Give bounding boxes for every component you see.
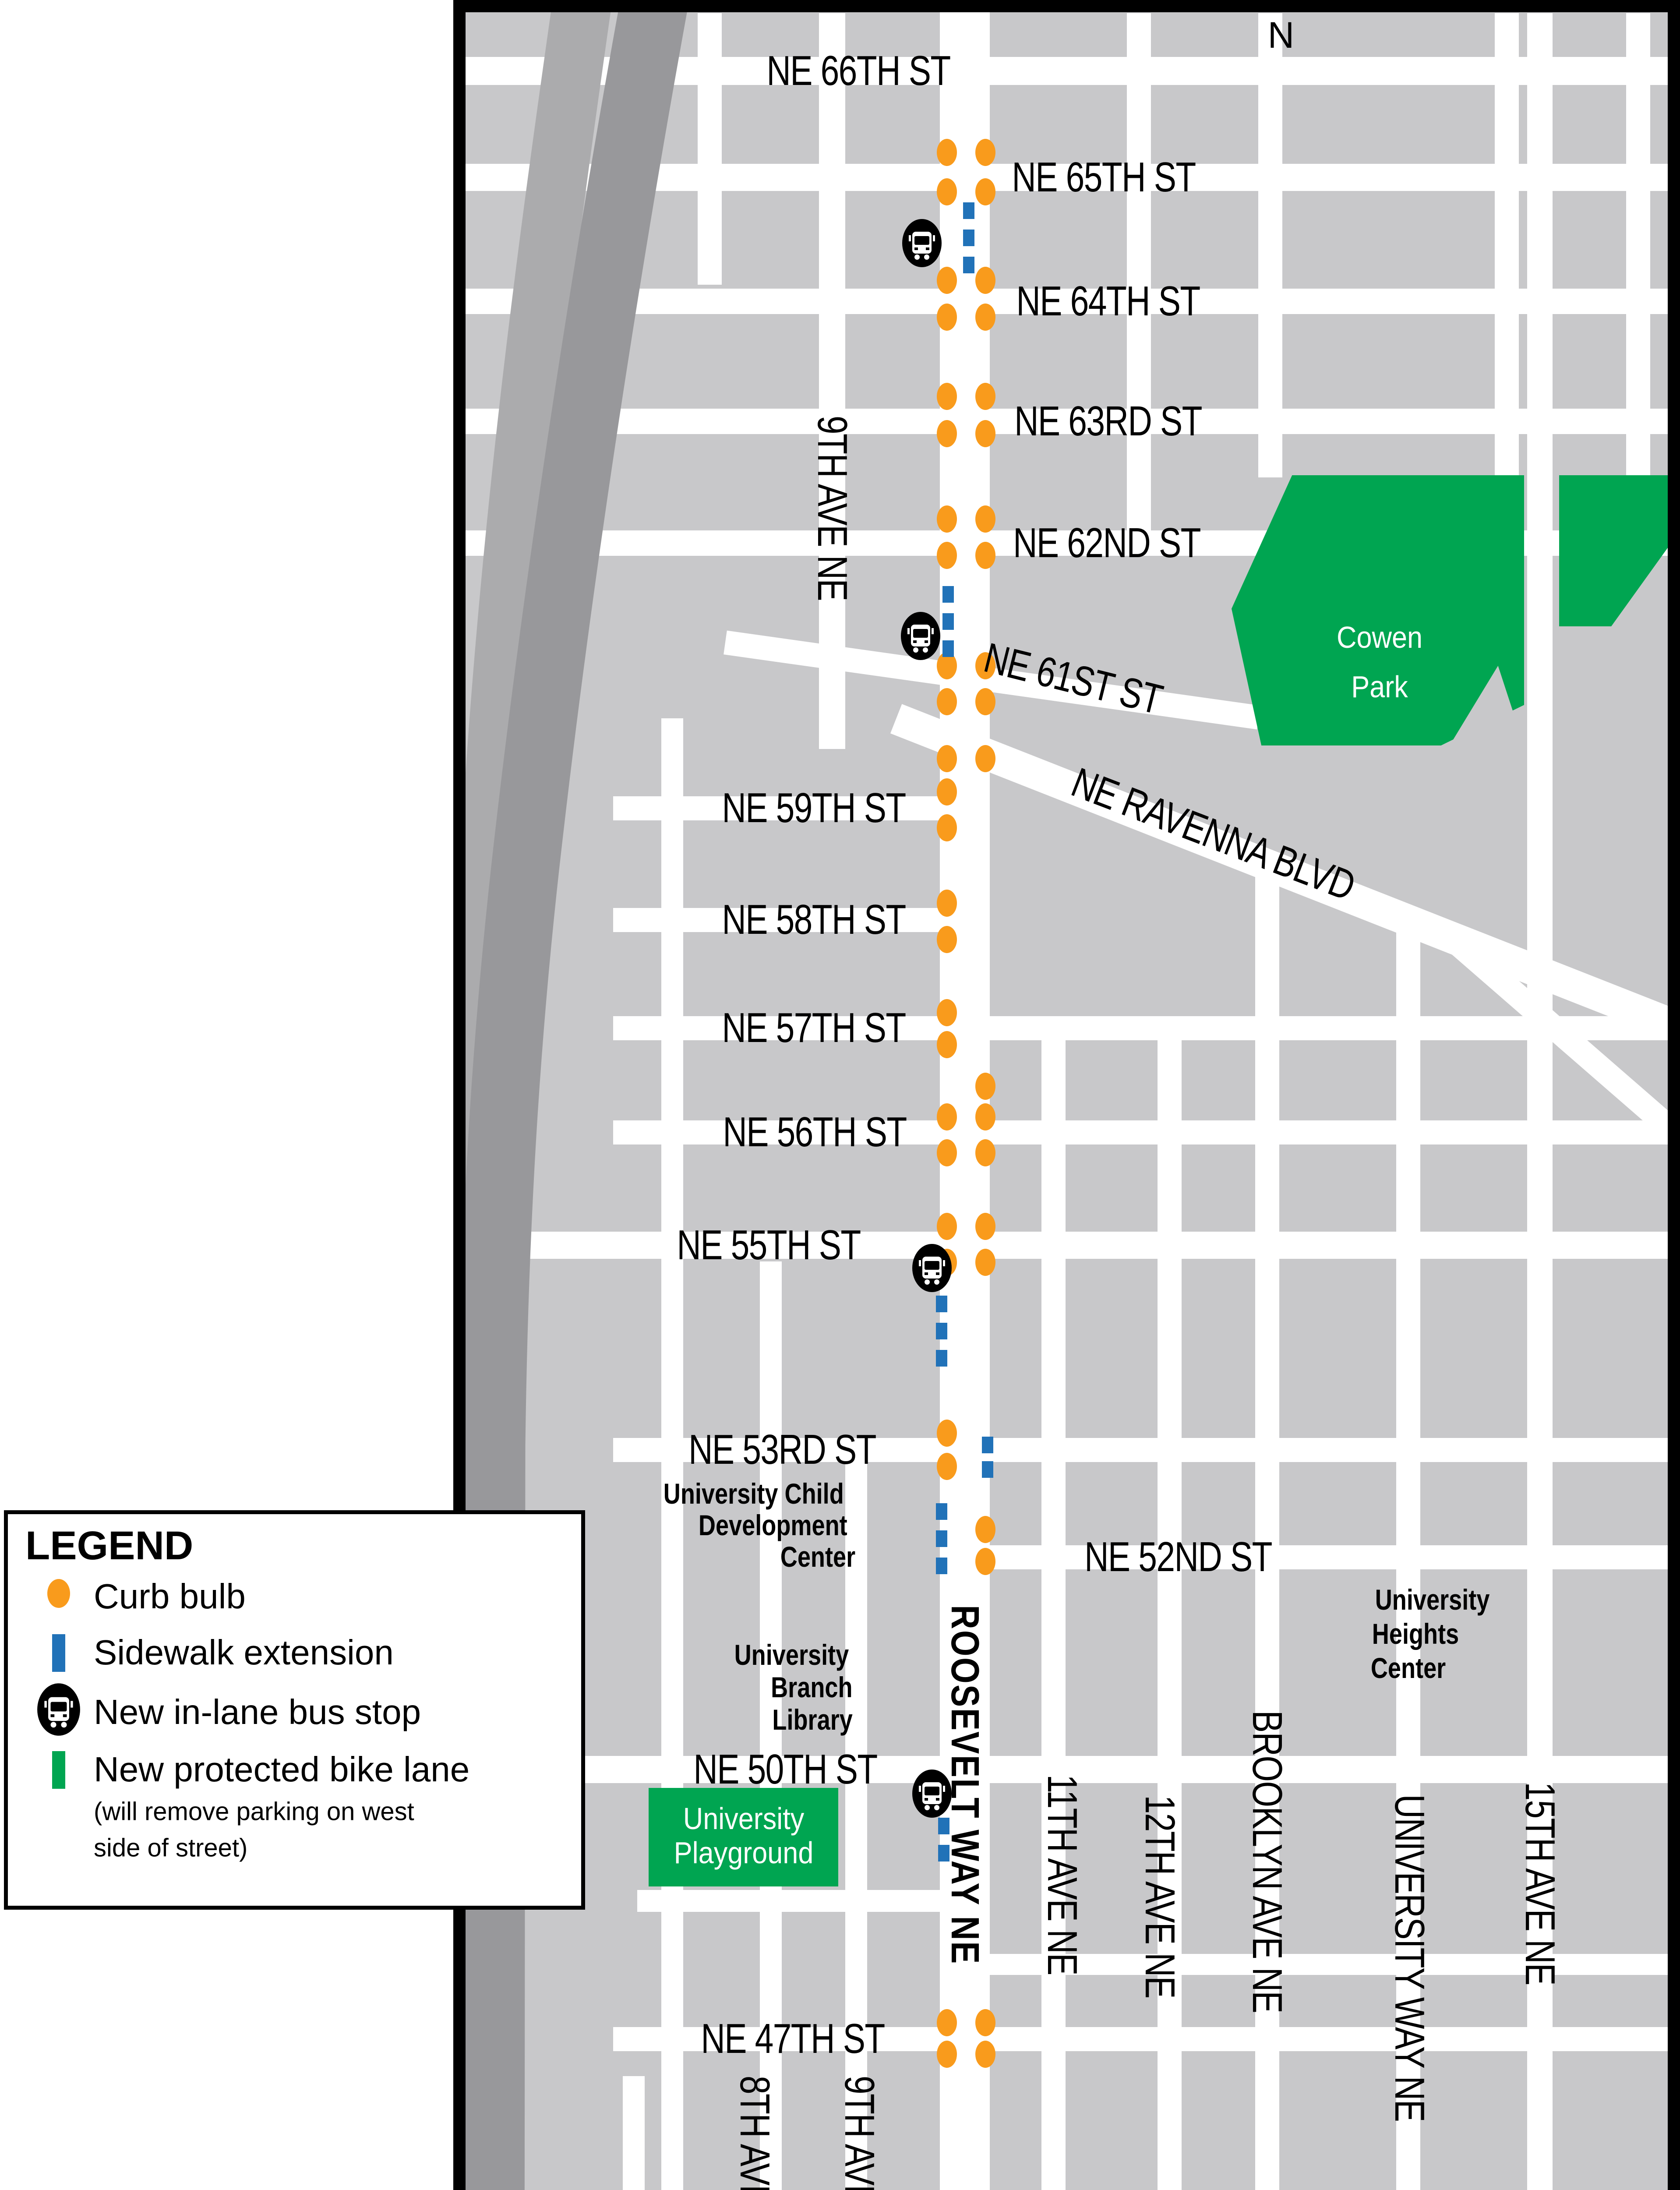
label-9th-ave-ne: 9TH AVE NE [811, 416, 853, 600]
label-ne-65th-st: NE 65TH ST [1012, 156, 1195, 198]
street-horizontal [466, 1232, 1668, 1259]
sidewalk-extension-marker [936, 1350, 947, 1367]
label-university-way-ne: UNIVERSITY WAY NE [1388, 1794, 1430, 2122]
curb-bulb-marker [937, 139, 957, 166]
compass-north-label: N [1268, 17, 1295, 53]
roosevelt-way-improvements-map: N 5 LEGEND Curb bulb Sidewalk extension … [0, 0, 1680, 2190]
sidewalk-extension-marker [942, 640, 954, 657]
curb-bulb-marker [937, 999, 957, 1026]
legend-bike-lane-note-line1: (will remove parking on west [94, 1797, 414, 1826]
label-center: Center [1371, 1653, 1446, 1682]
curb-bulb-marker [937, 1453, 957, 1480]
label-ne-47th-st: NE 47TH ST [701, 2018, 884, 2060]
curb-bulb-marker [937, 778, 957, 805]
street-vertical [1626, 13, 1650, 477]
label-15th-ave-ne: 15TH AVE NE [1519, 1782, 1561, 1985]
legend-item-curb-bulb: Curb bulb [94, 1576, 246, 1617]
sidewalk-extension-icon [52, 1634, 65, 1672]
curb-bulb-marker [937, 1420, 957, 1447]
street-vertical [1495, 13, 1519, 477]
curb-bulb-marker [937, 688, 957, 715]
curb-bulb-marker [937, 420, 957, 447]
map-border-right [1668, 0, 1680, 2190]
sidewalk-extension-marker [963, 230, 974, 246]
label-university: University [734, 1640, 849, 1669]
label-ne-58th-st: NE 58TH ST [722, 899, 905, 941]
label-heights: Heights [1372, 1619, 1459, 1648]
university-child-development-center-building [872, 1471, 932, 1587]
bus-stop-icon [37, 1683, 81, 1736]
label-9th-ave-ne: 9TH AVE NE [838, 2076, 880, 2190]
curb-bulb-marker [937, 814, 957, 841]
label-11th-ave-ne: 11TH AVE NE [1041, 1774, 1083, 1975]
curb-bulb-marker [937, 267, 957, 294]
sidewalk-extension-marker [982, 1461, 993, 1478]
sidewalk-extension-marker [942, 613, 954, 630]
curb-bulb-marker [975, 304, 995, 331]
curb-bulb-marker [937, 178, 957, 205]
label-ne-55th-st: NE 55TH ST [677, 1224, 860, 1266]
sidewalk-extension-marker [982, 1437, 993, 1453]
sidewalk-extension-marker [936, 1558, 947, 1574]
curb-bulb-marker [937, 1103, 957, 1130]
curb-bulb-marker [975, 2009, 995, 2036]
legend-panel: LEGEND Curb bulb Sidewalk extension New … [4, 1510, 585, 1910]
university-heights-center-building [1292, 1568, 1354, 1731]
curb-bulb-marker [937, 1031, 957, 1058]
street-vertical [1041, 1016, 1066, 2190]
curb-bulb-marker [975, 267, 995, 294]
label-roosevelt-way-ne: ROOSEVELT WAY NE [945, 1605, 985, 1965]
label-ne-59th-st: NE 59TH ST [722, 787, 905, 829]
bike-lane-icon [52, 1751, 65, 1789]
curb-bulb-marker [975, 1213, 995, 1240]
bus-stop-marker [902, 219, 942, 270]
legend-item-bike-lane: New protected bike lane [94, 1749, 469, 1790]
label-park: Park [1351, 671, 1408, 702]
university-branch-library-building [872, 1634, 932, 1754]
label-8th-ave-ne: 8TH AVE NE [734, 2076, 776, 2190]
curb-bulb-marker [975, 139, 995, 166]
sidewalk-extension-marker [936, 1530, 947, 1547]
legend-bike-lane-note-line2: side of street) [94, 1833, 247, 1863]
curb-bulb-marker [975, 1548, 995, 1575]
bus-stop-marker [912, 1243, 952, 1295]
label-university: University [1375, 1585, 1490, 1614]
street-vertical [623, 2076, 645, 2190]
curb-bulb-marker [937, 890, 957, 917]
label-cowen: Cowen [1337, 622, 1422, 653]
curb-bulb-marker [937, 1139, 957, 1166]
curb-bulb-marker [975, 1139, 995, 1166]
label-ne-57th-st: NE 57TH ST [722, 1007, 905, 1049]
label-ne-63rd-st: NE 63RD ST [1014, 400, 1202, 442]
label-ne-53rd-st: NE 53RD ST [688, 1429, 876, 1471]
label-development: Development [699, 1511, 847, 1540]
curb-bulb-marker [975, 383, 995, 410]
curb-bulb-marker [975, 2041, 995, 2068]
street-vertical [1158, 1016, 1182, 2190]
street-horizontal [466, 57, 1668, 85]
label-ne-52nd-st: NE 52ND ST [1084, 1536, 1272, 1578]
curb-bulb-marker [937, 926, 957, 953]
sidewalk-extension-marker [936, 1296, 947, 1312]
sidewalk-extension-marker [942, 586, 954, 603]
sidewalk-extension-marker [936, 1503, 947, 1520]
label-center: Center [780, 1542, 855, 1571]
legend-title: LEGEND [25, 1523, 193, 1569]
curb-bulb-marker [975, 1103, 995, 1130]
curb-bulb-marker [937, 2041, 957, 2068]
curb-bulb-marker [975, 1516, 995, 1543]
curb-bulb-marker [975, 745, 995, 772]
sidewalk-extension-marker [963, 202, 974, 219]
label-ne-50th-st: NE 50TH ST [693, 1748, 877, 1791]
street-vertical [819, 13, 845, 749]
legend-item-bus-stop: New in-lane bus stop [94, 1692, 421, 1732]
curb-bulb-marker [975, 1073, 995, 1100]
label-ne-56th-st: NE 56TH ST [723, 1111, 906, 1153]
label-playground: Playground [674, 1837, 814, 1868]
street-vertical [661, 718, 683, 2190]
curb-bulb-marker [975, 688, 995, 715]
label-12th-ave-ne: 12TH AVE NE [1139, 1795, 1181, 1998]
label-ne-66th-st: NE 66TH ST [766, 50, 950, 92]
street-vertical [698, 13, 722, 285]
label-ne-64th-st: NE 64TH ST [1016, 280, 1200, 322]
curb-bulb-marker [937, 1213, 957, 1240]
curb-bulb-marker [937, 383, 957, 410]
curb-bulb-marker [937, 2009, 957, 2036]
curb-bulb-icon [47, 1579, 70, 1608]
curb-bulb-marker [937, 542, 957, 569]
label-university-child: University Child [664, 1479, 844, 1508]
label-brooklyn-ave-ne: BROOKLYN AVE NE [1246, 1710, 1288, 2013]
curb-bulb-marker [937, 505, 957, 533]
bus-stop-marker [900, 611, 941, 663]
legend-item-sidewalk-extension: Sidewalk extension [94, 1632, 394, 1673]
label-university: University [683, 1803, 805, 1834]
curb-bulb-marker [975, 505, 995, 533]
label-library: Library [772, 1705, 852, 1734]
map-border-top [453, 0, 1680, 12]
street-vertical [1258, 13, 1282, 477]
curb-bulb-marker [975, 178, 995, 205]
curb-bulb-marker [975, 542, 995, 569]
curb-bulb-marker [937, 745, 957, 772]
sidewalk-extension-marker [963, 257, 974, 273]
curb-bulb-marker [975, 1249, 995, 1276]
label-ne-62nd-st: NE 62ND ST [1013, 522, 1200, 564]
curb-bulb-marker [975, 420, 995, 447]
label-branch: Branch [771, 1673, 852, 1702]
sidewalk-extension-marker [936, 1323, 947, 1339]
curb-bulb-marker [937, 304, 957, 331]
